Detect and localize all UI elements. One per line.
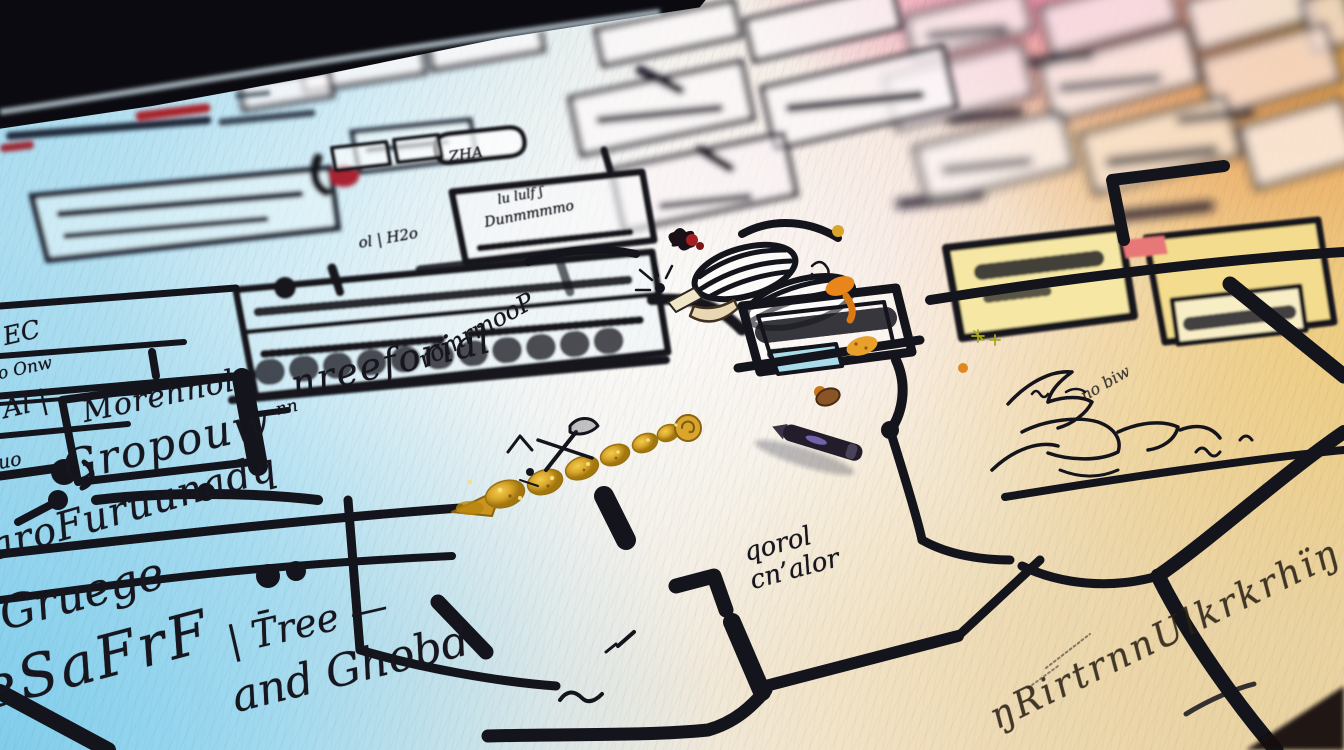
vignette-overlay <box>0 0 1344 750</box>
photo-of-flowchart-sketch: Morehnol Gropouw aroFuruunadq Gruege | T… <box>0 0 1344 750</box>
